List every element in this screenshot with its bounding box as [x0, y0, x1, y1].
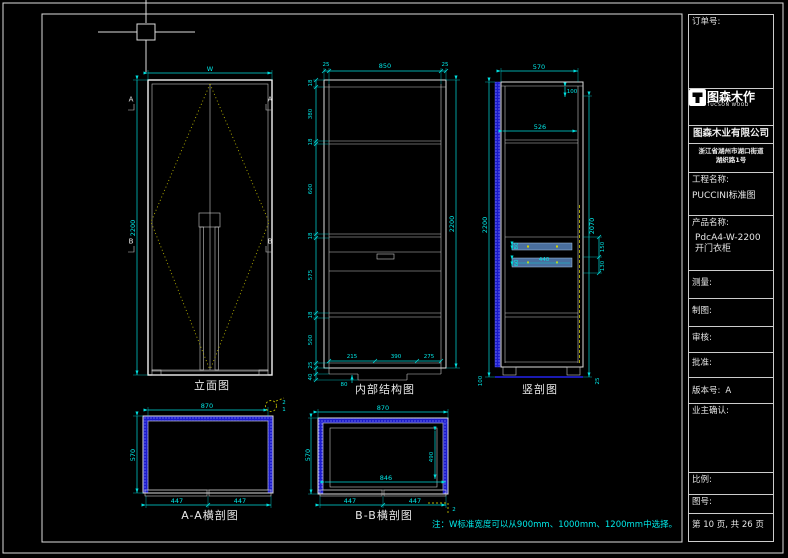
- dim-internal-bottom-0: 215: [347, 354, 358, 361]
- dim-elevation-width: W: [207, 66, 213, 73]
- measure-label: 测量:: [692, 278, 770, 288]
- dim-internal-bottom-1: 390: [391, 354, 402, 361]
- dim-vsection-br: 25: [595, 378, 602, 385]
- company-address-line1: 浙江省湖州市湖口街道: [690, 147, 772, 156]
- dim-vsection-shelf: 526: [534, 124, 546, 131]
- dim-internal-left-2: 18: [308, 139, 315, 146]
- audit-label: 审核:: [692, 333, 770, 343]
- project-value: PUCCINI标准图: [692, 191, 770, 202]
- aa-section-view: [133, 398, 284, 508]
- company-name: 图森木业有限公司: [690, 127, 772, 140]
- dim-vsection-drawer-h1: 80: [514, 243, 521, 250]
- scale-label: 比例:: [692, 475, 770, 485]
- dim-internal-top-mid: 850: [379, 63, 391, 70]
- approve-label: 批准:: [692, 358, 770, 368]
- vsection-caption: 竖剖图: [522, 384, 558, 395]
- bb-detail-num: 2: [452, 507, 456, 514]
- dim-vsection-rs-1: 130: [600, 261, 607, 272]
- cad-drawing-viewport[interactable]: W 2200 A A B B 立面图 25 850 25 2200 18 380…: [0, 0, 788, 558]
- dim-aa-bottom-0: 447: [171, 498, 183, 505]
- dim-aa-left: 570: [130, 449, 137, 461]
- page-number: 第 10 页, 共 26 页: [692, 520, 770, 530]
- dim-bb-left: 570: [305, 449, 312, 461]
- dim-internal-left-9: 40: [308, 374, 315, 381]
- dim-vsection-bl: 100: [478, 376, 485, 387]
- product-model: PdcA4-W-2200: [692, 233, 770, 244]
- title-block: 订单号: 图森木作 TUCSON WOOD 图森木业有限公司 浙江省湖州市湖口街…: [688, 14, 774, 542]
- dim-vsection-drawer-w: 440: [539, 257, 550, 264]
- figure-no-label: 图号:: [692, 497, 770, 507]
- dim-internal-top-right: 25: [442, 62, 449, 69]
- drawing-linework: [0, 0, 788, 558]
- tucson-logo-icon: [689, 89, 706, 106]
- dim-vsection-drawer-h2: 60: [514, 260, 521, 267]
- product-cell: 产品名称: PdcA4-W-2200 开门衣柜: [689, 216, 773, 271]
- dim-internal-height: 2200: [449, 216, 456, 233]
- draft-cell: 制图:: [689, 299, 773, 327]
- figure-no-cell: 图号:: [689, 495, 773, 514]
- dim-vsection-100: 100: [567, 89, 578, 96]
- dim-internal-top-left: 25: [323, 62, 330, 69]
- order-number-label: 订单号:: [692, 17, 770, 27]
- project-label: 工程名称:: [692, 175, 770, 185]
- dim-elevation-height: 2200: [130, 220, 137, 237]
- dim-internal-left-3: 600: [308, 184, 315, 195]
- order-number-cell: 订单号:: [689, 15, 773, 89]
- scale-cell: 比例:: [689, 473, 773, 495]
- internal-caption: 内部结构图: [355, 384, 415, 395]
- measure-cell: 测量:: [689, 271, 773, 299]
- dim-bb-bottom-0: 447: [344, 498, 356, 505]
- dim-internal-left-6: 18: [308, 312, 315, 319]
- bb-section-view: [308, 409, 448, 514]
- draft-label: 制图:: [692, 306, 770, 316]
- section-marker-a-right: A: [268, 97, 273, 104]
- dim-aa-bottom-1: 447: [234, 498, 246, 505]
- logo-subtitle: TUCSON WOOD: [707, 103, 755, 108]
- dim-internal-left-5: 575: [308, 270, 315, 281]
- address-cell: 浙江省湖州市湖口街道 湖织路1号: [689, 144, 773, 173]
- version-label: 版本号:: [692, 386, 720, 396]
- dim-vsection-right: 2070: [589, 218, 596, 235]
- page-cell: 第 10 页, 共 26 页: [689, 514, 773, 541]
- aa-detail-num-0: 2: [282, 400, 286, 407]
- section-marker-a-left: A: [129, 97, 134, 104]
- section-marker-b-left: B: [129, 239, 134, 246]
- audit-cell: 审核:: [689, 327, 773, 353]
- dim-internal-plinth: 80: [341, 382, 348, 389]
- product-label: 产品名称:: [692, 218, 770, 228]
- owner-confirm-cell: 业主确认:: [689, 404, 773, 473]
- company-cell: 图森木业有限公司: [689, 126, 773, 144]
- dim-aa-top: 870: [201, 403, 213, 410]
- elevation-view: [128, 70, 272, 375]
- dim-internal-left-8: 25: [308, 362, 315, 369]
- logo-cell: 图森木作 TUCSON WOOD: [689, 89, 773, 126]
- version-value: A: [725, 386, 731, 396]
- dim-vsection-left: 2200: [482, 217, 489, 234]
- approve-cell: 批准:: [689, 353, 773, 378]
- company-address-line2: 湖织路1号: [690, 156, 772, 165]
- internal-structure-view: [313, 68, 460, 383]
- aa-caption: A-A横剖图: [181, 510, 239, 521]
- vertical-section-view: [485, 68, 602, 377]
- owner-confirm-label: 业主确认:: [692, 406, 770, 416]
- logo-name: 图森木作: [707, 91, 755, 103]
- elevation-caption: 立面图: [194, 380, 230, 391]
- dim-internal-left-7: 500: [308, 335, 315, 346]
- width-note: 注：W标准宽度可以从900mm、1000mm、1200mm中选择。: [432, 521, 677, 530]
- dim-bb-inner-w: 846: [380, 475, 392, 482]
- dim-bb-bottom-1: 447: [409, 498, 421, 505]
- aa-detail-num-1: 1: [282, 407, 286, 414]
- dim-internal-bottom-2: 275: [424, 354, 435, 361]
- section-marker-b-right: B: [268, 239, 273, 246]
- dim-vsection-top: 570: [533, 64, 545, 71]
- dim-vsection-rs-0: 150: [600, 242, 607, 253]
- dim-bb-top: 870: [377, 405, 389, 412]
- dim-internal-left-1: 380: [308, 109, 315, 120]
- bb-caption: B-B横剖图: [355, 510, 413, 521]
- version-cell: 版本号: A: [689, 378, 773, 404]
- dim-internal-left-4: 18: [308, 233, 315, 240]
- project-cell: 工程名称: PUCCINI标准图: [689, 173, 773, 216]
- product-type: 开门衣柜: [692, 244, 770, 255]
- dim-bb-inner-h: 490: [429, 452, 436, 463]
- crosshair-cursor: [98, 0, 195, 72]
- dim-internal-left-0: 18: [308, 80, 315, 87]
